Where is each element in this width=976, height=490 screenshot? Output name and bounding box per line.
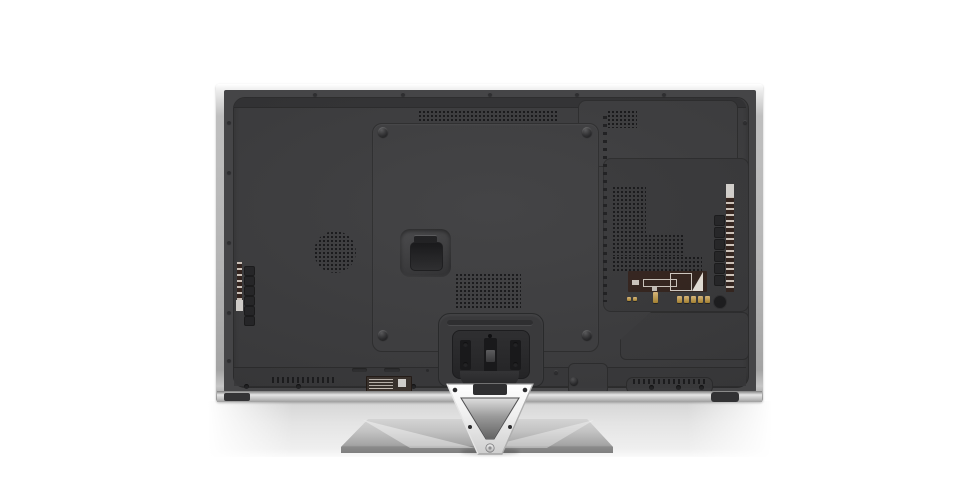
antenna-terminal xyxy=(684,296,689,303)
rim-screw xyxy=(227,120,231,124)
handle-inner-cavity xyxy=(410,242,443,271)
stand-v-bracket xyxy=(444,382,536,456)
antenna-terminal-tall xyxy=(653,292,658,303)
floor-shadow-fade-right xyxy=(687,401,772,458)
slot-latch xyxy=(486,350,495,362)
panel-hole xyxy=(554,370,558,374)
side-control-button xyxy=(244,296,255,306)
bracket-screw xyxy=(468,425,472,429)
left-foot xyxy=(224,393,250,401)
slot-dash xyxy=(352,368,367,372)
diagram-swoosh xyxy=(692,272,703,291)
compartment-screw xyxy=(570,377,578,385)
ledge-screw xyxy=(244,384,249,389)
top-right-vent-patch xyxy=(607,110,637,128)
antenna-terminal xyxy=(633,297,637,301)
speaker-grille xyxy=(314,231,356,273)
mount-slot-right xyxy=(510,340,521,370)
vesa-corner-screw xyxy=(582,330,592,340)
diagram-plug-mark xyxy=(632,280,639,285)
rim-screw xyxy=(313,92,317,96)
side-port xyxy=(714,263,725,274)
bar-screw xyxy=(699,385,704,390)
slot-screw xyxy=(463,342,468,347)
right-vent-block-middle xyxy=(612,234,684,256)
bracket-screw xyxy=(453,388,458,393)
left-white-label xyxy=(236,300,243,311)
mount-slot-left xyxy=(460,340,471,370)
rim-screw xyxy=(743,120,747,124)
right-vent-block-upper xyxy=(612,186,646,234)
serration xyxy=(633,379,706,384)
tv-rear-photo xyxy=(0,0,976,490)
slot-screw xyxy=(513,362,518,367)
bracket-screw xyxy=(523,388,528,393)
ledge-screw xyxy=(296,384,301,389)
right-foot xyxy=(711,392,739,402)
connection-diagram-label xyxy=(628,271,707,292)
side-port xyxy=(714,275,725,286)
side-port xyxy=(714,251,725,262)
port-label-strip xyxy=(726,184,734,292)
bracket-bolt-center xyxy=(488,446,491,449)
rating-label-text-lines xyxy=(369,379,393,390)
bracket-top-gap xyxy=(473,384,507,395)
rim-screw xyxy=(227,170,231,174)
floor-shadow-fade-left xyxy=(208,401,293,458)
port-label-white-top xyxy=(726,184,734,197)
side-port xyxy=(714,227,725,238)
slot-screw xyxy=(513,342,518,347)
antenna-terminal xyxy=(627,297,631,301)
side-port xyxy=(714,239,725,250)
side-control-button xyxy=(244,276,255,286)
side-control-button xyxy=(244,286,255,296)
bottom-left-serration xyxy=(272,377,337,383)
side-port xyxy=(714,215,725,226)
top-right-panel xyxy=(578,100,738,167)
rim-screw xyxy=(662,92,666,96)
vesa-corner-screw xyxy=(582,127,592,137)
rim-screw xyxy=(227,240,231,244)
vesa-corner-screw xyxy=(378,330,388,340)
rating-label-white-square xyxy=(398,379,406,387)
diagram-box xyxy=(670,273,692,291)
antenna-terminal xyxy=(677,296,682,303)
rim-screw xyxy=(227,310,231,314)
vesa-corner-screw xyxy=(378,127,388,137)
antenna-terminal xyxy=(705,296,710,303)
slot-dash xyxy=(384,368,400,372)
bar-screw xyxy=(676,385,681,390)
left-label-strip xyxy=(237,262,242,300)
slot-screw xyxy=(463,362,468,367)
cable-knob xyxy=(713,295,727,309)
mount-groove xyxy=(447,320,533,326)
side-control-button xyxy=(244,316,255,326)
antenna-terminal xyxy=(691,296,696,303)
bracket-screw xyxy=(508,425,512,429)
bar-screw xyxy=(649,385,654,390)
diagram-antenna-mark xyxy=(652,287,657,291)
rim-screw xyxy=(488,92,492,96)
side-control-button xyxy=(244,266,255,276)
antenna-terminal xyxy=(698,296,703,303)
handle-clip xyxy=(414,235,437,243)
side-vent-dash-column xyxy=(603,116,607,302)
top-vent-strip xyxy=(418,110,558,122)
rim-screw xyxy=(575,92,579,96)
rim-screw xyxy=(401,92,405,96)
center-vent-patch xyxy=(455,273,521,309)
small-hole xyxy=(426,369,429,372)
rim-screw xyxy=(227,358,231,362)
side-control-button xyxy=(244,306,255,316)
